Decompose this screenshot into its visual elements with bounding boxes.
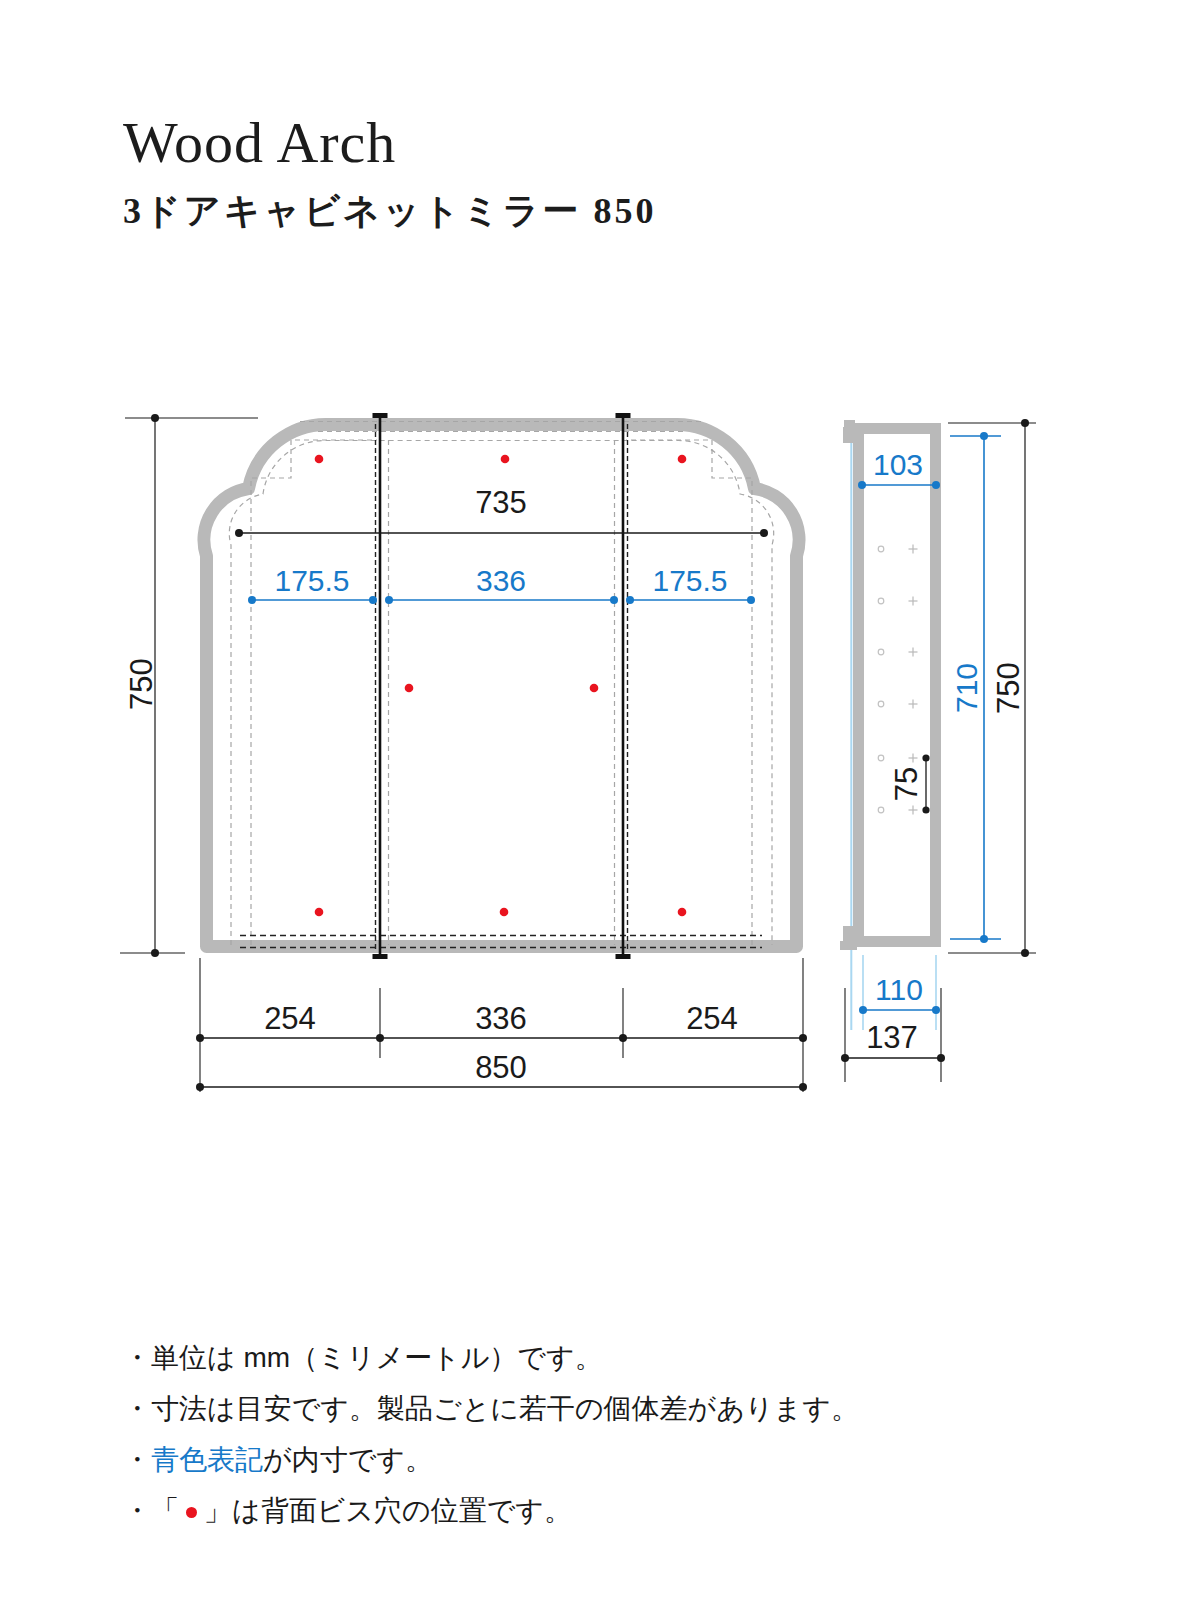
screw-hole-dot-icon [186,1507,197,1518]
dim-door-widths: 254 336 254 [196,1001,807,1042]
note-units-text: ・単位は mm（ミリメートル）です。 [123,1342,603,1373]
dim-label-336-inner: 336 [476,564,526,597]
dim-label-110: 110 [875,973,923,1006]
note-blue-bullet: ・ [123,1444,151,1475]
note-units: ・単位は mm（ミリメートル）です。 [123,1332,859,1383]
note-blue-rest: が内寸です。 [263,1444,433,1475]
dim-total-width-850: 850 [196,1050,807,1091]
dim-label-735: 735 [475,485,527,520]
dim-label-side-750: 750 [991,662,1026,714]
side-cabinet-box [859,429,936,942]
note-screw-holes: ・「」は背面ビス穴の位置です。 [123,1485,859,1536]
dim-label-336-door: 336 [475,1001,527,1036]
notes: ・単位は mm（ミリメートル）です。 ・寸法は目安です。製品ごとに若干の個体差が… [123,1332,859,1536]
note-tolerance: ・寸法は目安です。製品ごとに若干の個体差があります。 [123,1383,859,1434]
note-screw-prefix: ・「 [123,1495,179,1526]
front-view: 735 175.5 336 175.5 750 [120,413,807,1092]
dim-label-175-left: 175.5 [274,564,349,597]
dim-inner-depth-110: 110 [859,955,940,1030]
dim-label-254-right: 254 [686,1001,738,1036]
dim-label-254-left: 254 [264,1001,316,1036]
note-blue-dims: ・青色表記が内寸です。 [123,1434,859,1485]
note-tolerance-text: ・寸法は目安です。製品ごとに若干の個体差があります。 [123,1393,859,1424]
dim-label-175-right: 175.5 [652,564,727,597]
dim-label-height-750: 750 [124,658,159,710]
side-view: 75 103 710 750 [840,419,1036,1082]
dim-label-103: 103 [873,448,923,481]
note-blue-term: 青色表記 [151,1444,263,1475]
dim-label-75: 75 [889,767,924,801]
note-screw-suffix: 」は背面ビス穴の位置です。 [204,1495,572,1526]
dim-label-137: 137 [866,1020,918,1055]
dim-label-710: 710 [950,663,983,713]
dim-label-850: 850 [475,1050,527,1085]
